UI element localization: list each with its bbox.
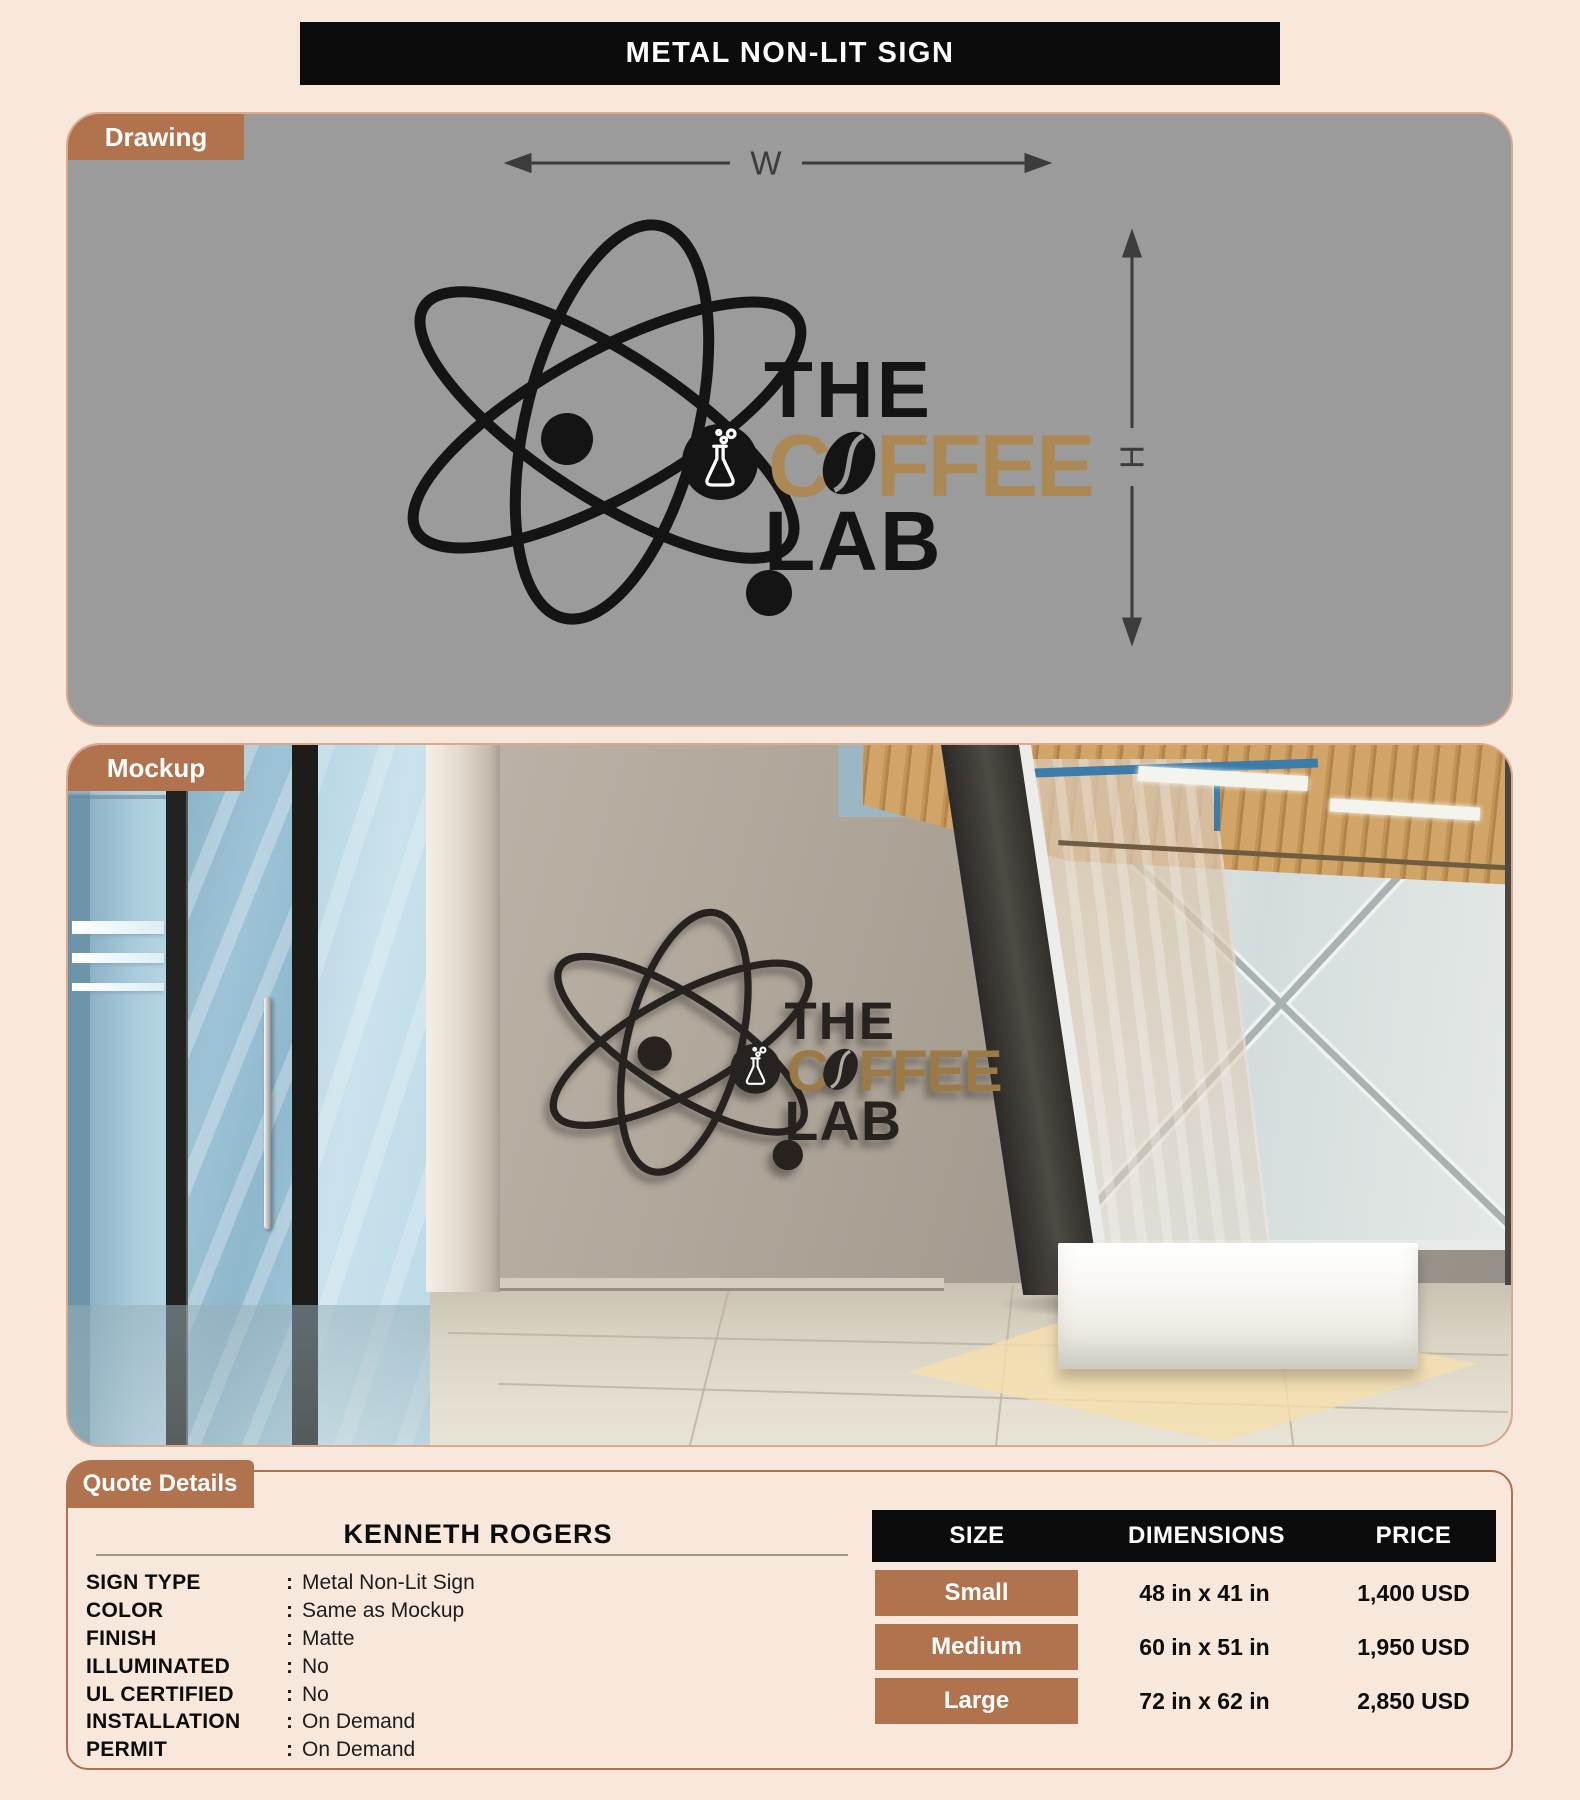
door-handle <box>264 997 271 1229</box>
size-button-medium[interactable]: Medium <box>875 1624 1078 1670</box>
quote-field-row: UL CERTIFIED : No <box>86 1681 475 1709</box>
right-frame-strip <box>1505 745 1513 1285</box>
field-colon: : <box>286 1653 293 1681</box>
arrow-right-icon <box>1026 155 1048 171</box>
quote-details-section: Quote Details KENNETH ROGERS SIGN TYPE :… <box>66 1470 1513 1770</box>
field-colon: : <box>286 1681 293 1709</box>
pricing-table: SIZE DIMENSIONS PRICE Small 48 in x 41 i… <box>872 1510 1496 1724</box>
customer-name: KENNETH ROGERS <box>98 1519 858 1550</box>
arrow-left-icon <box>508 155 530 171</box>
quote-field-row: PERMIT : On Demand <box>86 1736 475 1764</box>
logo-text-lab: LAB <box>785 1090 903 1152</box>
quote-field-row: ILLUMINATED : No <box>86 1653 475 1681</box>
col-header-size: SIZE <box>872 1510 1082 1562</box>
coffee-lab-logo: THE C FFEE LAB <box>442 197 1092 637</box>
glass-partition <box>68 745 430 1447</box>
mockup-tab: Mockup <box>68 745 244 791</box>
field-colon: : <box>286 1569 293 1597</box>
lit-wall-edge <box>426 745 500 1292</box>
quote-field-row: COLOR : Same as Mockup <box>86 1597 475 1625</box>
col-header-dimensions: DIMENSIONS <box>1082 1510 1331 1562</box>
size-button-small[interactable]: Small <box>875 1570 1078 1616</box>
quote-field-row: FINISH : Matte <box>86 1625 475 1653</box>
quote-field-row: SIGN TYPE : Metal Non-Lit Sign <box>86 1569 475 1597</box>
field-label: PERMIT <box>86 1736 286 1764</box>
quote-field-row: INSTALLATION : On Demand <box>86 1708 475 1736</box>
dimensions-value: 60 in x 51 in <box>1078 1634 1331 1661</box>
width-dimension-label: W <box>750 145 782 182</box>
field-value: Metal Non-Lit Sign <box>302 1569 475 1597</box>
drawing-section: W H THE C FFEE LAB Drawing <box>66 112 1513 727</box>
dimensions-value: 72 in x 62 in <box>1078 1688 1331 1715</box>
pricing-row-medium: Medium 60 in x 51 in 1,950 USD <box>872 1624 1496 1670</box>
logo-mockup-sign: THE C FFEE LAB <box>572 894 1001 1184</box>
divider <box>96 1554 848 1556</box>
col-header-price: PRICE <box>1331 1510 1496 1562</box>
white-cabinet <box>1058 1243 1418 1369</box>
mockup-tab-label: Mockup <box>107 753 205 784</box>
quote-details-tab: Quote Details <box>66 1460 254 1508</box>
field-value: Same as Mockup <box>302 1597 464 1625</box>
pricing-header-row: SIZE DIMENSIONS PRICE <box>872 1510 1496 1562</box>
drawing-tab: Drawing <box>68 114 244 160</box>
field-colon: : <box>286 1597 293 1625</box>
field-colon: : <box>286 1708 293 1736</box>
electron-dot-icon <box>541 413 593 465</box>
pricing-row-small: Small 48 in x 41 in 1,400 USD <box>872 1570 1496 1616</box>
field-value: No <box>302 1681 329 1709</box>
field-label: COLOR <box>86 1597 286 1625</box>
size-button-large[interactable]: Large <box>875 1678 1078 1724</box>
dimensions-value: 48 in x 41 in <box>1078 1580 1331 1607</box>
price-value: 2,850 USD <box>1331 1688 1496 1715</box>
coffee-lab-logo: THE C FFEE LAB <box>572 894 1001 1184</box>
field-label: INSTALLATION <box>86 1708 286 1736</box>
mockup-section: THE C FFEE LAB Mockup <box>66 743 1513 1447</box>
logo-text-lab: LAB <box>764 494 943 588</box>
field-colon: : <box>286 1625 293 1653</box>
pricing-row-large: Large 72 in x 62 in 2,850 USD <box>872 1678 1496 1724</box>
quote-tab-label: Quote Details <box>83 1470 238 1498</box>
price-value: 1,400 USD <box>1331 1580 1496 1607</box>
field-value: On Demand <box>302 1708 415 1736</box>
height-dimension-label: H <box>1114 445 1151 469</box>
arrow-up-icon <box>1124 233 1140 256</box>
electron-dot-icon <box>638 1036 672 1070</box>
field-label: ILLUMINATED <box>86 1653 286 1681</box>
field-label: UL CERTIFIED <box>86 1681 286 1709</box>
logo-drawing: THE C FFEE LAB <box>442 197 1092 637</box>
lit-shelf <box>72 983 164 991</box>
page-title: METAL NON-LIT SIGN <box>300 22 1280 85</box>
field-value: On Demand <box>302 1736 415 1764</box>
floor-reflection <box>68 1305 430 1447</box>
quote-fields: SIGN TYPE : Metal Non-Lit Sign COLOR : S… <box>86 1569 475 1764</box>
field-colon: : <box>286 1736 293 1764</box>
wall-baseboard <box>496 1278 944 1291</box>
price-value: 1,950 USD <box>1331 1634 1496 1661</box>
arrow-down-icon <box>1124 619 1140 642</box>
lit-shelf <box>72 921 164 934</box>
field-label: FINISH <box>86 1625 286 1653</box>
lit-shelf <box>72 953 164 963</box>
drawing-tab-label: Drawing <box>105 122 208 153</box>
field-label: SIGN TYPE <box>86 1569 286 1597</box>
field-value: No <box>302 1653 329 1681</box>
field-value: Matte <box>302 1625 355 1653</box>
